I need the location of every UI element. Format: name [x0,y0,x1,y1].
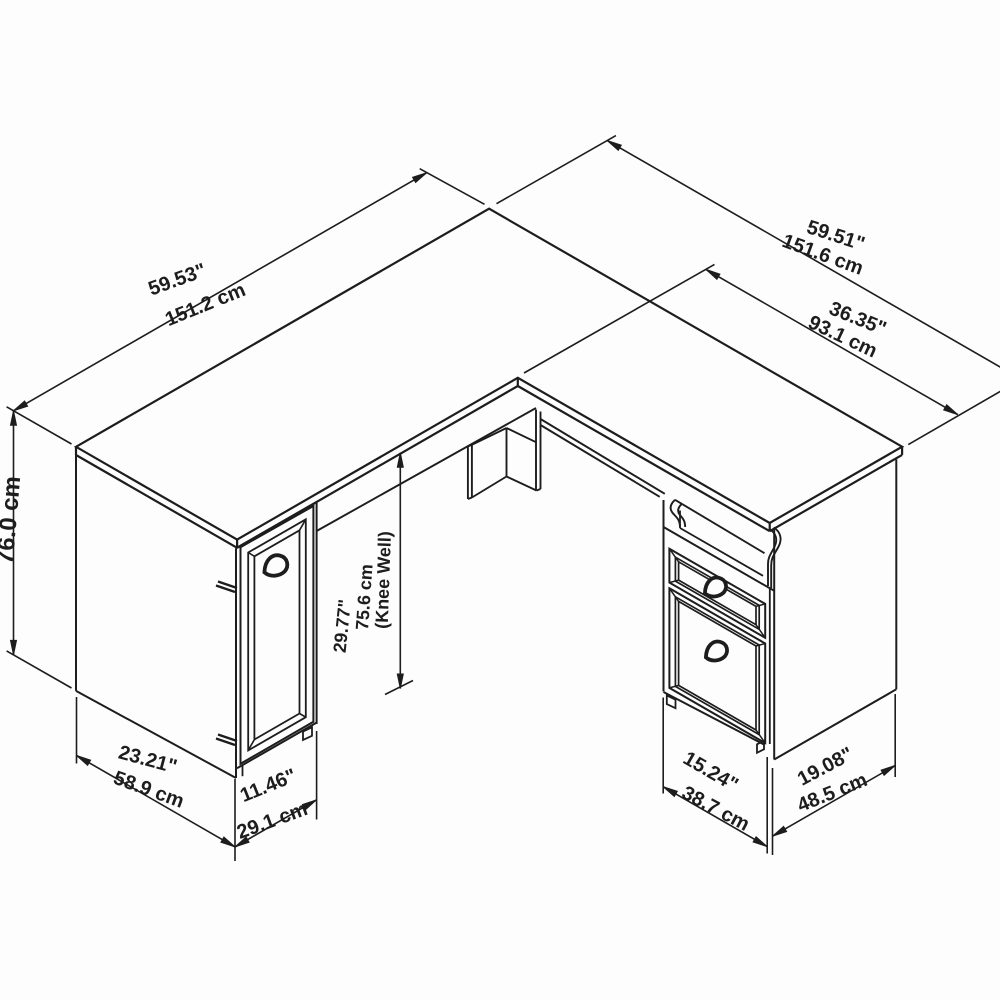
svg-text:(Knee Well): (Knee Well) [372,531,395,629]
